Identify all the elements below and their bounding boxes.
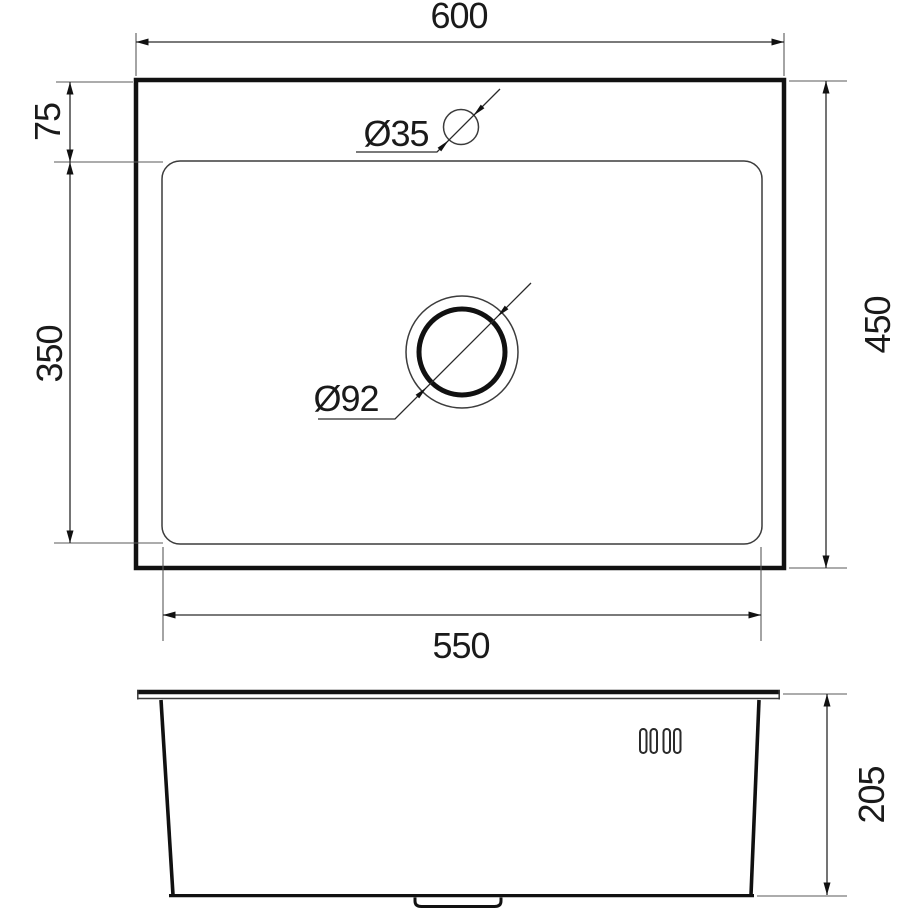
bowl-width-label: 550 <box>432 625 489 666</box>
top-view: Ø35 Ø92 600 450 75 <box>27 0 898 666</box>
dim-faucet-offset: 75 <box>27 82 163 162</box>
overall-width-label: 600 <box>430 0 487 36</box>
bowl-height-label: 205 <box>851 766 892 823</box>
bowl-left-wall <box>161 700 173 895</box>
drain-diameter-label: Ø92 <box>313 378 378 419</box>
dim-overall-depth: 450 <box>789 81 898 568</box>
side-view: 205 <box>137 690 892 907</box>
sink-outer-edge <box>136 80 784 568</box>
sink-technical-drawing: Ø35 Ø92 600 450 75 <box>0 0 908 908</box>
drain-fitting <box>415 898 501 907</box>
faucet-diameter-label: Ø35 <box>363 113 428 154</box>
dim-bowl-width: 550 <box>163 547 761 666</box>
overflow-slots-icon <box>640 729 681 753</box>
dim-overall-width: 600 <box>136 0 784 76</box>
dim-bowl-depth: 350 <box>29 162 163 543</box>
drawing-canvas: Ø35 Ø92 600 450 75 <box>0 0 908 908</box>
dim-bowl-height: 205 <box>757 694 892 896</box>
sink-rim <box>137 690 780 700</box>
faucet-hole <box>444 110 479 145</box>
faucet-offset-label: 75 <box>27 103 68 141</box>
overall-depth-label: 450 <box>857 296 898 353</box>
bowl-depth-label: 350 <box>29 325 70 382</box>
bowl-right-wall <box>751 700 759 895</box>
